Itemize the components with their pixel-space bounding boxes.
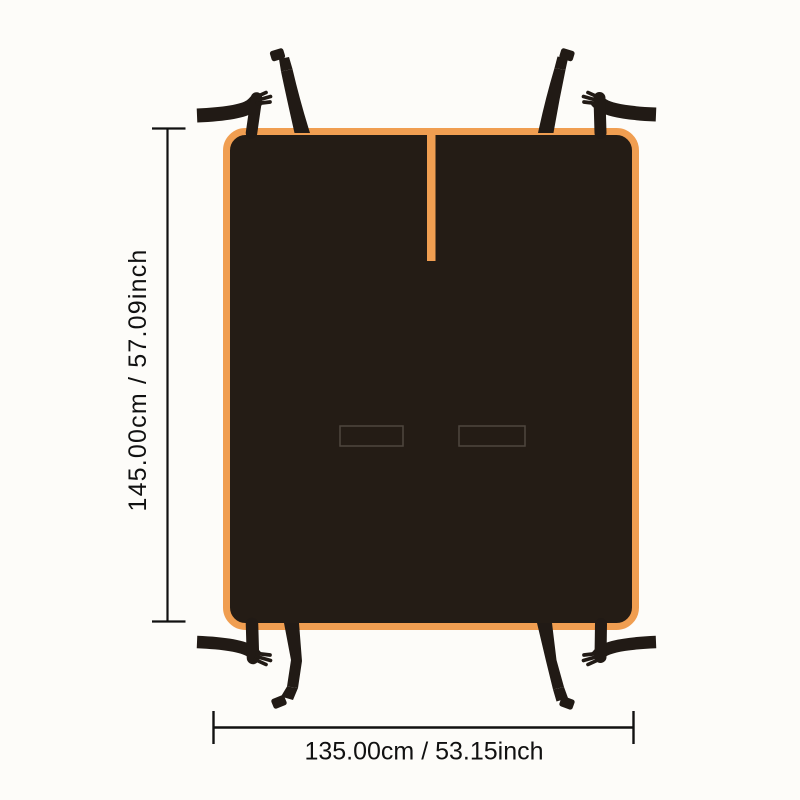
svg-text:135.00cm / 53.15inch: 135.00cm / 53.15inch [304, 738, 543, 766]
svg-text:145.00cm / 57.09inch: 145.00cm / 57.09inch [124, 248, 152, 511]
